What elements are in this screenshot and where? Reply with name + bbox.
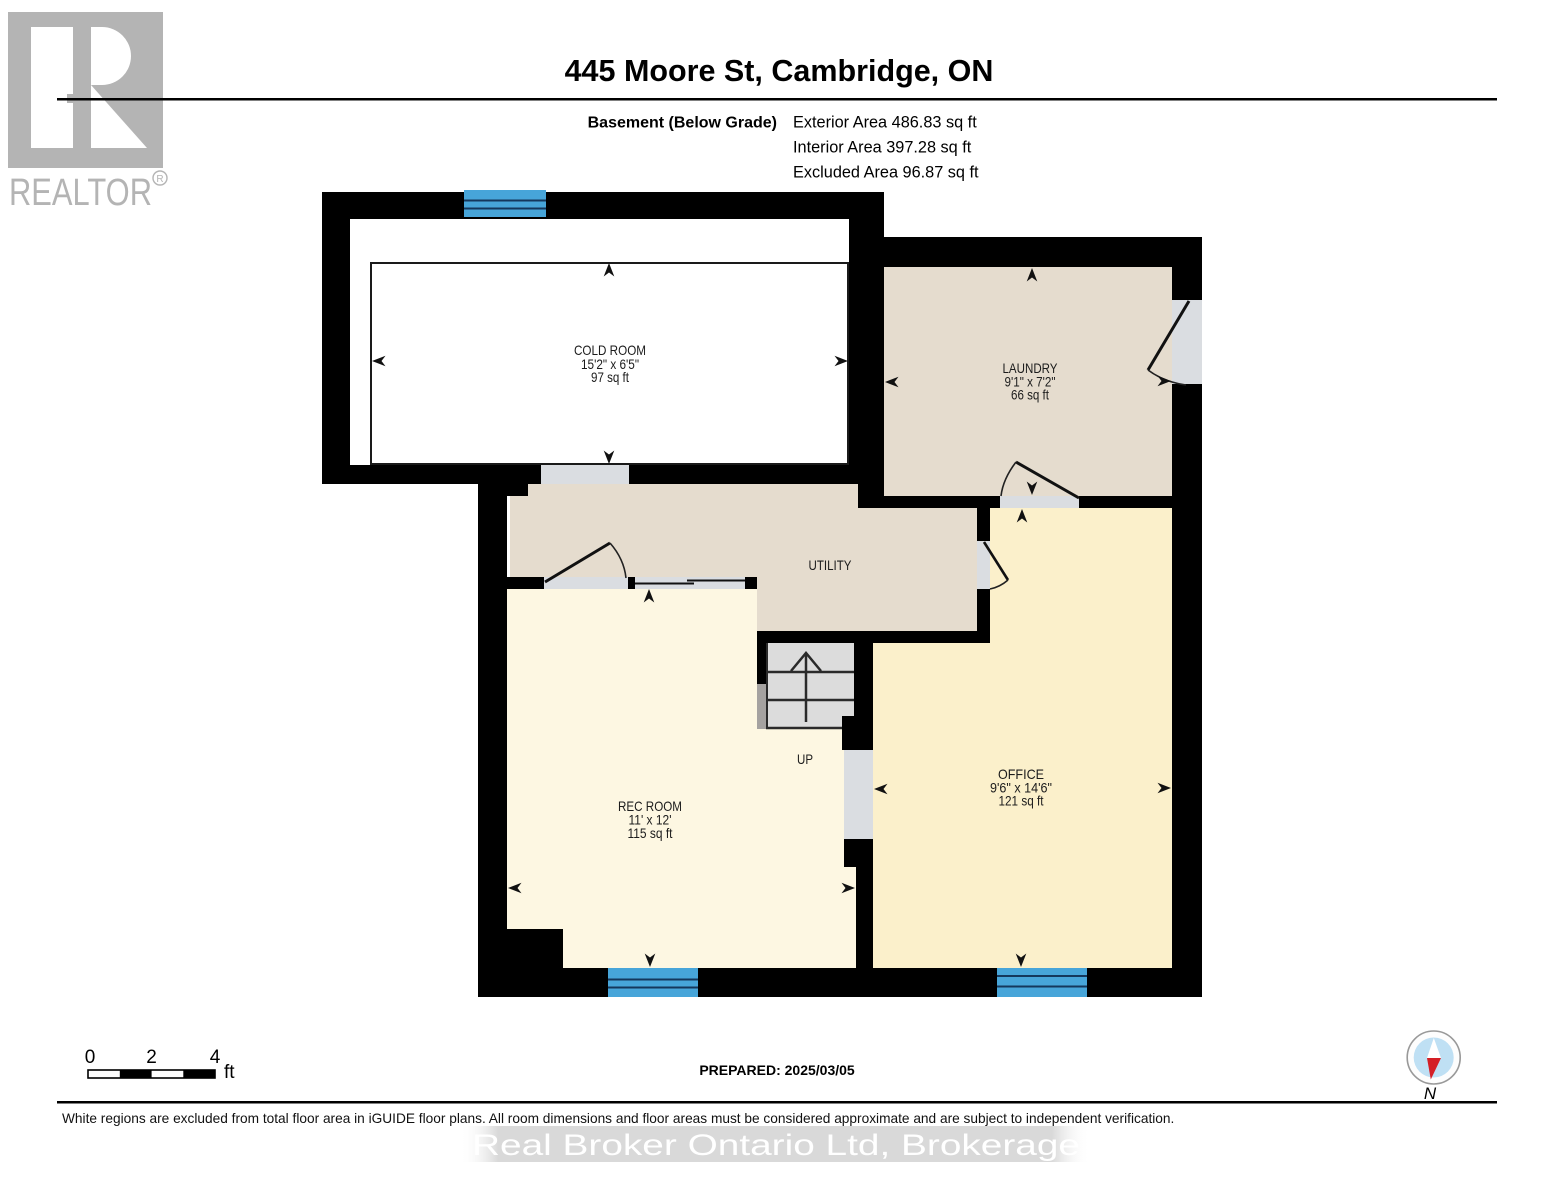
svg-text:2: 2 bbox=[146, 1047, 157, 1068]
svg-text:121 sq ft: 121 sq ft bbox=[999, 793, 1044, 809]
svg-text:UP: UP bbox=[797, 751, 813, 767]
svg-text:ft: ft bbox=[224, 1062, 235, 1083]
svg-text:R: R bbox=[156, 174, 163, 185]
svg-text:UTILITY: UTILITY bbox=[809, 557, 853, 573]
svg-text:PREPARED: 2025/03/05: PREPARED: 2025/03/05 bbox=[699, 1062, 855, 1078]
svg-text:Interior Area 397.28 sq ft: Interior Area 397.28 sq ft bbox=[793, 139, 972, 157]
svg-text:White regions are excluded fro: White regions are excluded from total fl… bbox=[62, 1111, 1174, 1126]
svg-text:REALTOR: REALTOR bbox=[9, 172, 152, 214]
svg-text:Basement (Below Grade): Basement (Below Grade) bbox=[588, 115, 777, 132]
svg-text:Excluded Area 96.87 sq ft: Excluded Area 96.87 sq ft bbox=[793, 164, 979, 182]
svg-text:4: 4 bbox=[210, 1047, 221, 1068]
svg-text:Real Broker Ontario Ltd, Broke: Real Broker Ontario Ltd, Brokerage bbox=[472, 1129, 1080, 1162]
svg-text:N: N bbox=[1424, 1084, 1437, 1103]
svg-text:97 sq ft: 97 sq ft bbox=[591, 369, 629, 385]
svg-text:0: 0 bbox=[85, 1047, 96, 1068]
svg-text:Exterior Area 486.83 sq ft: Exterior Area 486.83 sq ft bbox=[793, 114, 977, 132]
svg-text:66 sq ft: 66 sq ft bbox=[1011, 387, 1049, 403]
svg-text:445 Moore St, Cambridge, ON: 445 Moore St, Cambridge, ON bbox=[565, 54, 994, 88]
svg-text:115 sq ft: 115 sq ft bbox=[628, 825, 673, 841]
